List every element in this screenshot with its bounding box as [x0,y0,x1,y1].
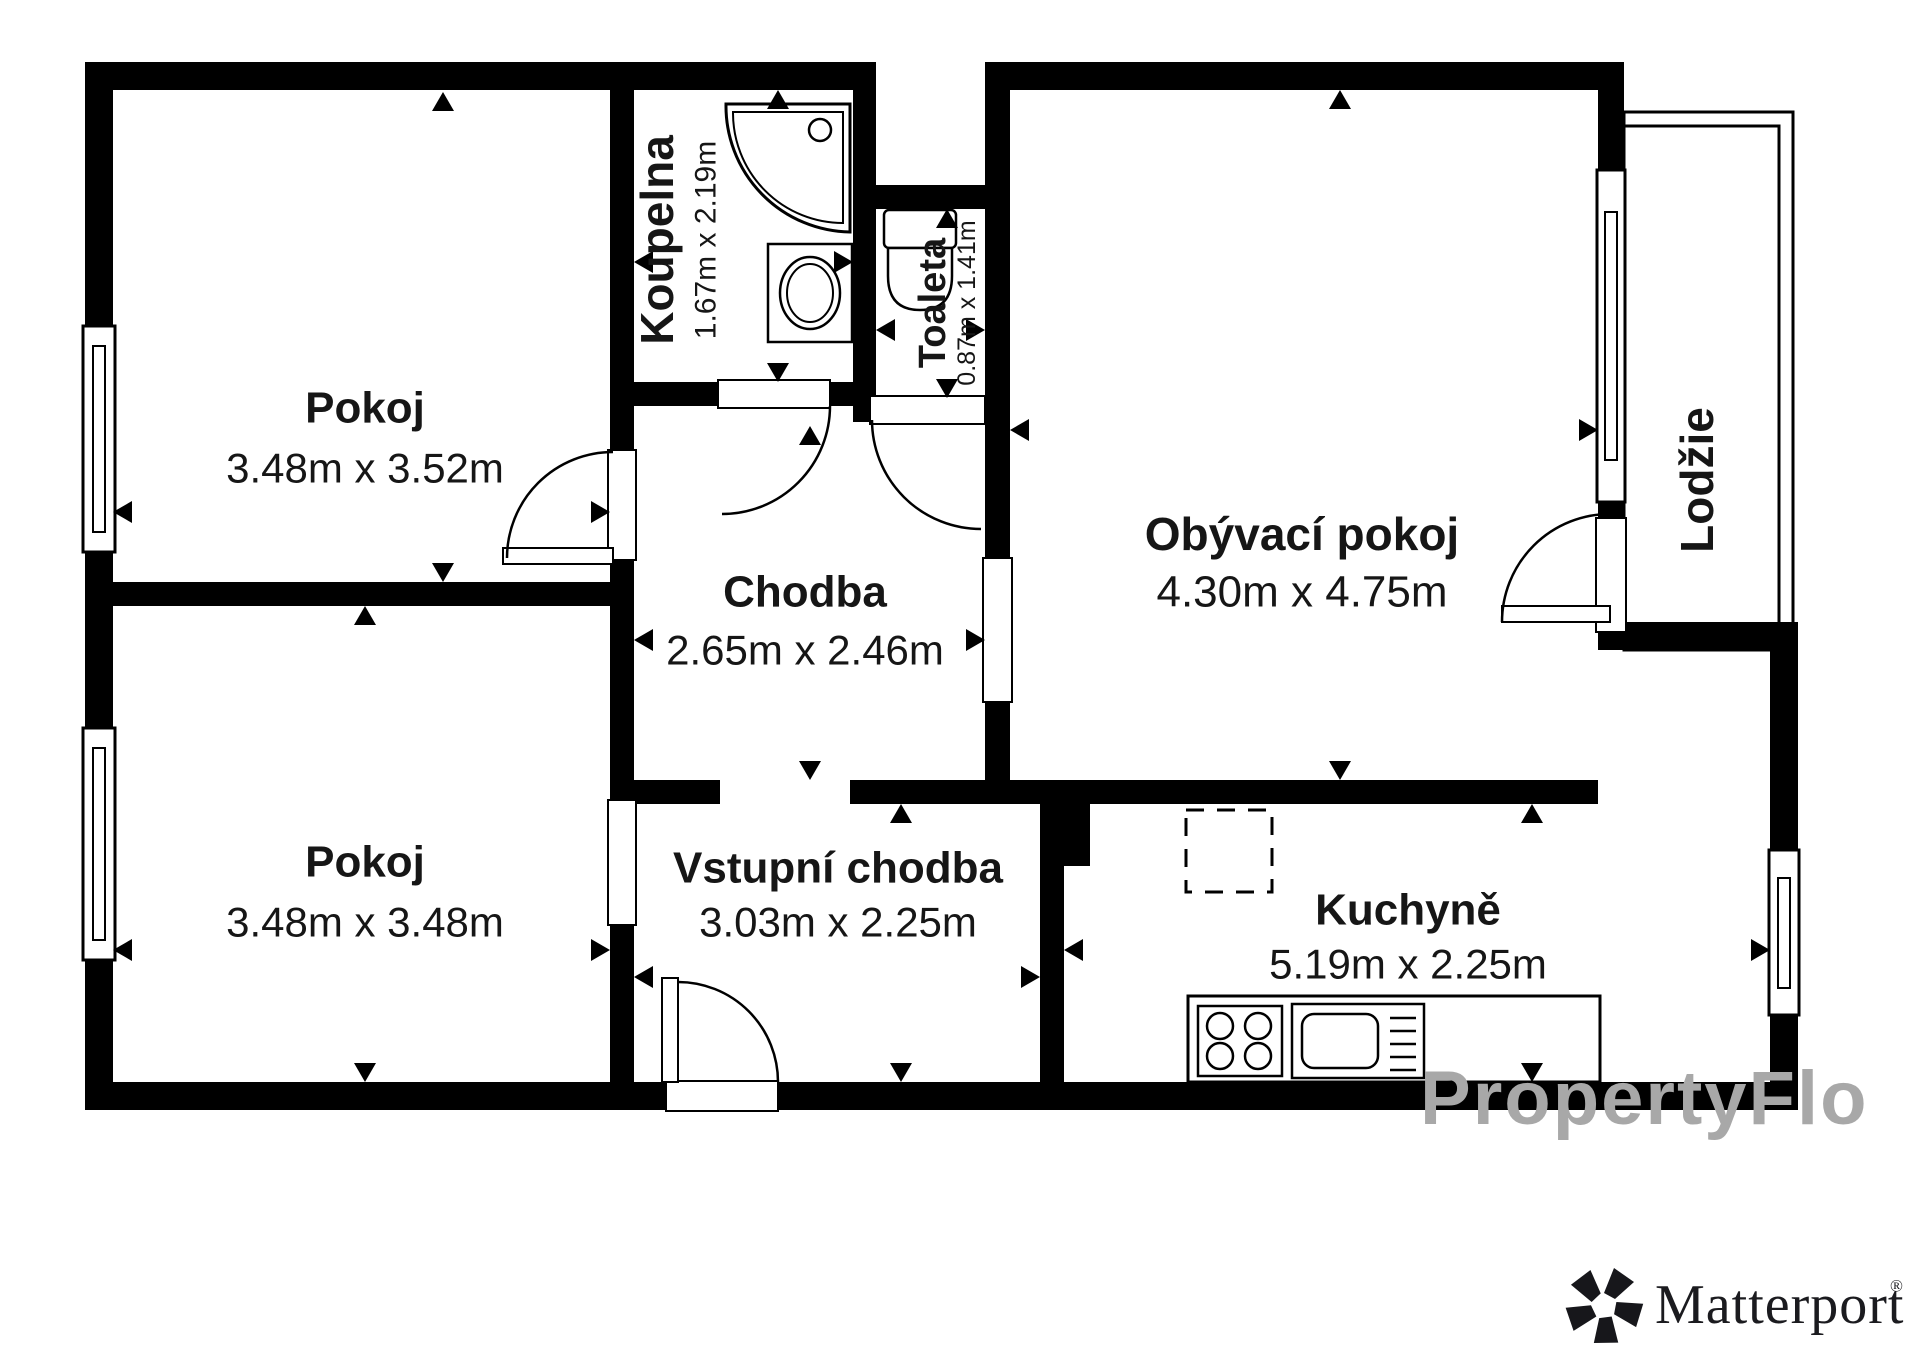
matterport-logo: Matterport ® [1557,1266,1904,1355]
floor-plan-page: PropertyFlo Pokoj 3.48m x 3.52m Pokoj 3.… [0,0,1920,1358]
wall-segment [850,780,1598,804]
room-label-koupelna: Koupelna [631,135,683,345]
room-dims-koupelna: 1.67m x 2.19m [690,141,723,339]
matterport-wordmark: Matterport [1655,1274,1904,1336]
room-label-chodba: Chodba [723,568,887,617]
room-dims-toaleta: 0.87m x 1.41m [953,220,981,385]
door-opening-toaleta [870,396,985,424]
room-dims-vstupni-chodba: 3.03m x 2.25m [699,899,977,946]
dimension-arrow [634,629,653,651]
door-swing-arc [678,982,778,1082]
door-leaf [1502,606,1610,622]
door-swing-arc [872,420,981,529]
registered-trademark-icon: ® [1890,1277,1903,1296]
room-label-pokoj-1: Pokoj [305,384,425,433]
wall-segment [1598,622,1798,650]
dimension-arrow [591,939,610,961]
dimension-arrow [354,606,376,625]
wall-segment [985,62,1624,90]
room-dims-chodba: 2.65m x 2.46m [666,627,944,674]
matterport-pinwheel-icon [1557,1266,1649,1355]
door-leaf [662,978,678,1082]
dimension-arrow [1021,966,1040,988]
window [83,326,115,552]
dimension-arrow [1064,939,1083,961]
dimension-arrow [634,966,653,988]
room-dims-pokoj-1: 3.48m x 3.52m [226,445,504,492]
dimension-arrow [876,319,895,341]
dimension-arrow [1010,419,1029,441]
door-opening-pokoj1 [608,450,636,560]
door-opening-koupelna [718,380,830,408]
wall-segment [634,780,720,804]
floor-plan-drawing: PropertyFlo Pokoj 3.48m x 3.52m Pokoj 3.… [0,0,1920,1358]
wall-segment [853,90,876,406]
door-leaf [503,548,613,564]
wall-segment [1040,804,1064,1082]
dimension-arrow [1751,939,1770,961]
room-label-toaleta: Toaleta [912,237,954,368]
room-label-lodzie: Lodžie [1671,407,1723,553]
room-label-vstupni-chodba: Vstupní chodba [673,844,1004,893]
wall-segment [85,62,876,90]
dimension-arrow [1329,90,1351,109]
room-label-obyvaci-pokoj: Obývací pokoj [1145,508,1459,560]
appliance-dashed-outline [1186,810,1272,892]
loggia-outline [1624,112,1793,650]
dimension-arrow [1579,419,1598,441]
passage-opening-living [983,558,1012,702]
loggia-inner-line [1624,126,1779,650]
room-dims-kuchyne: 5.19m x 2.25m [1269,941,1547,988]
wall-segment [113,582,634,606]
dimension-arrow [890,1063,912,1082]
dimension-arrow [1329,761,1351,780]
window [1769,850,1799,1015]
loggia-outer-line [1624,112,1793,650]
window [1597,170,1625,502]
dimension-arrow [432,563,454,582]
room-dims-pokoj-2: 3.48m x 3.48m [226,899,504,946]
dimension-arrow [354,1063,376,1082]
dimension-arrow [890,804,912,823]
window [83,728,115,960]
corner-shower [726,104,850,232]
dimension-arrow [767,90,789,109]
entrance-door-opening [666,1081,778,1111]
dimension-arrow [432,92,454,111]
room-label-pokoj-2: Pokoj [305,838,425,887]
room-labels: Pokoj 3.48m x 3.52m Pokoj 3.48m x 3.48m … [226,135,1723,988]
passage-opening-pokoj2 [608,800,636,925]
room-label-kuchyne: Kuchyně [1315,886,1501,935]
room-dims-obyvaci-pokoj: 4.30m x 4.75m [1156,568,1447,617]
wall-segment [1064,804,1090,866]
dimension-arrow [1521,804,1543,823]
dimension-arrow [799,761,821,780]
watermark: PropertyFlo [1420,1056,1869,1141]
dimension-arrow [799,426,821,445]
door-swing-arc [722,406,830,514]
